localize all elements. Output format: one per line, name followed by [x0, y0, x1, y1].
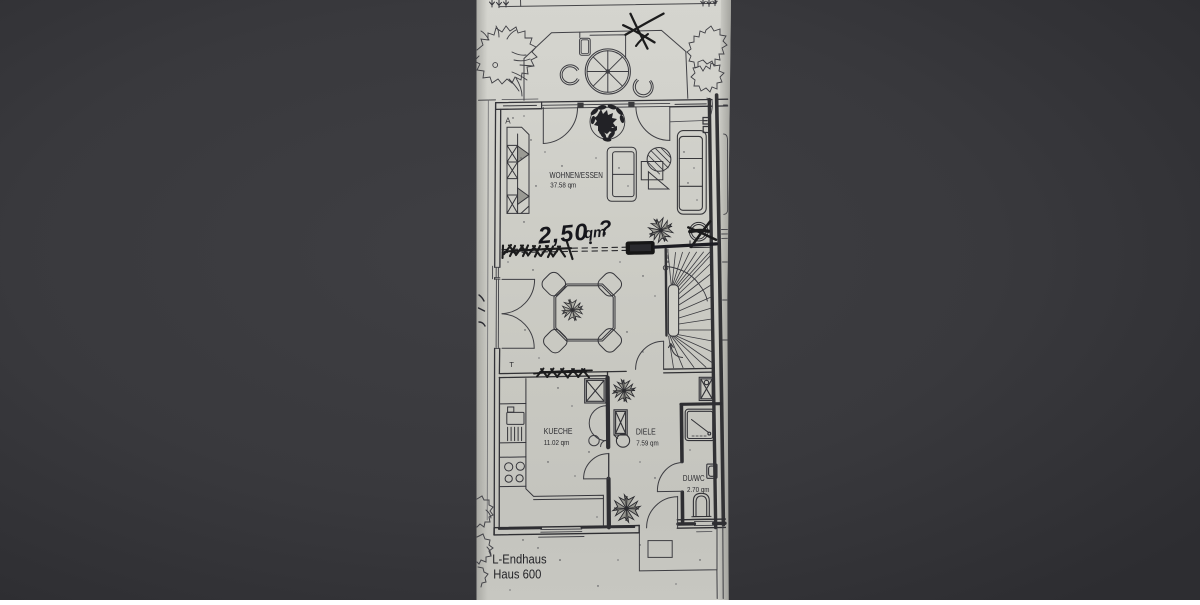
svg-text:2,50: 2,50	[536, 218, 590, 248]
svg-text:?: ?	[598, 216, 613, 240]
svg-text:A: A	[505, 116, 511, 125]
svg-text:11.02 qm: 11.02 qm	[544, 440, 570, 448]
svg-text:DIELE: DIELE	[636, 427, 656, 437]
svg-text:WOHNEN/ESSEN: WOHNEN/ESSEN	[549, 170, 602, 180]
svg-text:Haus 600: Haus 600	[493, 567, 541, 582]
svg-text:2.70 qm: 2.70 qm	[687, 487, 710, 495]
svg-text:L-Endhaus: L-Endhaus	[492, 552, 546, 567]
svg-text:DU/WC: DU/WC	[683, 473, 705, 483]
svg-text:37.58 qm: 37.58 qm	[550, 182, 576, 190]
svg-text:7.59 qm: 7.59 qm	[636, 440, 659, 448]
svg-text:KUECHE: KUECHE	[544, 427, 573, 437]
svg-text:T: T	[509, 360, 514, 369]
